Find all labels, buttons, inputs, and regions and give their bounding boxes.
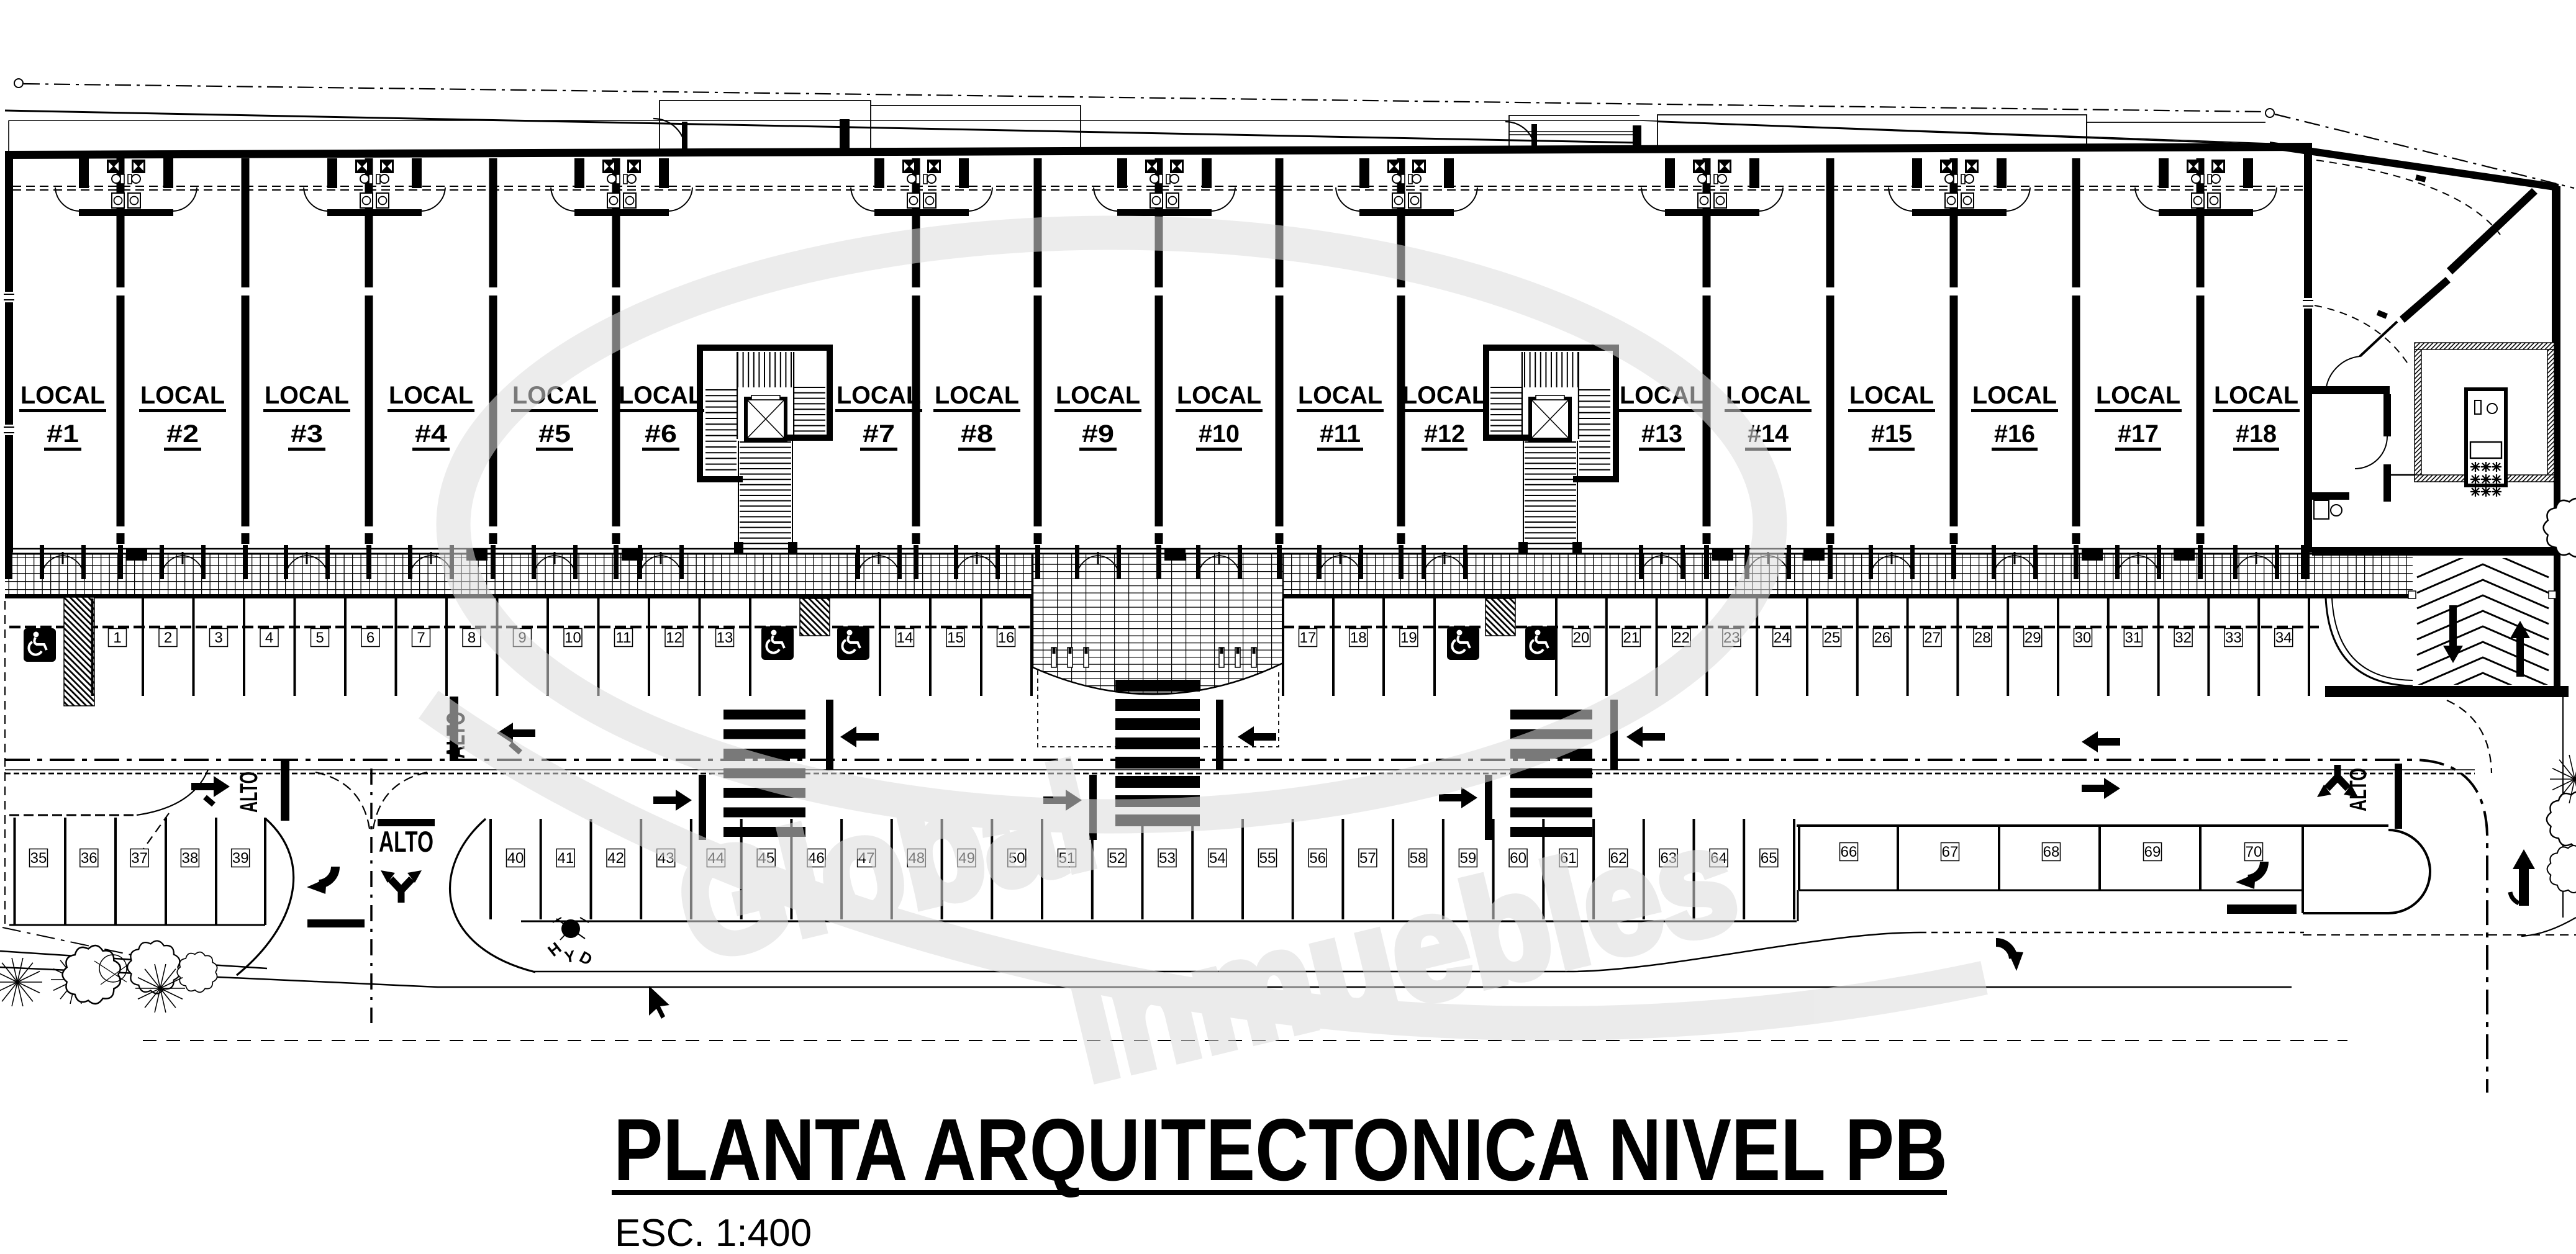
svg-text:#10: #10 xyxy=(1199,420,1240,448)
svg-text:#5: #5 xyxy=(538,420,571,448)
svg-text:30: 30 xyxy=(2075,629,2092,646)
svg-text:42: 42 xyxy=(607,850,624,867)
svg-text:36: 36 xyxy=(81,850,98,867)
svg-text:6: 6 xyxy=(366,629,374,646)
svg-text:LOCAL: LOCAL xyxy=(265,382,349,409)
svg-text:10: 10 xyxy=(565,629,581,646)
svg-text:11: 11 xyxy=(616,629,632,646)
svg-text:#11: #11 xyxy=(1320,420,1361,448)
svg-text:LOCAL: LOCAL xyxy=(1402,382,1487,409)
svg-text:18: 18 xyxy=(1350,629,1367,646)
svg-text:LOCAL: LOCAL xyxy=(389,382,473,409)
svg-text:LOCAL: LOCAL xyxy=(20,382,105,409)
svg-text:#13: #13 xyxy=(1641,420,1682,448)
svg-text:2: 2 xyxy=(164,629,172,646)
svg-text:35: 35 xyxy=(30,850,47,867)
svg-text:65: 65 xyxy=(1761,850,1777,867)
svg-text:LOCAL: LOCAL xyxy=(140,382,225,409)
svg-text:55: 55 xyxy=(1259,850,1276,867)
svg-text:LOCAL: LOCAL xyxy=(1177,382,1261,409)
svg-text:52: 52 xyxy=(1109,850,1125,867)
svg-text:39: 39 xyxy=(232,850,249,867)
svg-text:37: 37 xyxy=(131,850,148,867)
svg-text:#16: #16 xyxy=(1994,420,2035,448)
svg-text:#17: #17 xyxy=(2118,420,2159,448)
svg-text:53: 53 xyxy=(1159,850,1176,867)
svg-text:#18: #18 xyxy=(2236,420,2277,448)
svg-text:21: 21 xyxy=(1623,629,1639,646)
svg-text:LOCAL: LOCAL xyxy=(2096,382,2180,409)
svg-text:LOCAL: LOCAL xyxy=(1726,382,1810,409)
svg-text:13: 13 xyxy=(717,629,733,646)
svg-text:24: 24 xyxy=(1774,629,1790,646)
svg-text:1: 1 xyxy=(113,629,121,646)
svg-text:57: 57 xyxy=(1359,850,1376,867)
svg-text:#7: #7 xyxy=(863,420,895,448)
svg-text:67: 67 xyxy=(1942,844,1959,860)
svg-text:8: 8 xyxy=(468,629,476,646)
svg-text:19: 19 xyxy=(1400,629,1417,646)
svg-text:LOCAL: LOCAL xyxy=(2214,382,2298,409)
svg-text:LOCAL: LOCAL xyxy=(1056,382,1140,409)
svg-text:3: 3 xyxy=(214,629,222,646)
svg-text:41: 41 xyxy=(557,850,574,867)
svg-text:25: 25 xyxy=(1824,629,1841,646)
svg-text:LOCAL: LOCAL xyxy=(837,382,921,409)
svg-text:ALTO: ALTO xyxy=(379,825,433,858)
svg-text:LOCAL: LOCAL xyxy=(619,382,703,409)
svg-text:32: 32 xyxy=(2175,629,2192,646)
svg-text:70: 70 xyxy=(2246,844,2262,860)
svg-text:LOCAL: LOCAL xyxy=(1298,382,1382,409)
svg-text:27: 27 xyxy=(1924,629,1941,646)
svg-text:12: 12 xyxy=(666,629,683,646)
svg-text:28: 28 xyxy=(1974,629,1991,646)
svg-text:5: 5 xyxy=(315,629,324,646)
svg-text:14: 14 xyxy=(897,629,914,646)
svg-text:#2: #2 xyxy=(166,420,199,448)
svg-text:PLANTA ARQUITECTONICA NIVEL PB: PLANTA ARQUITECTONICA NIVEL PB xyxy=(614,1101,1948,1199)
svg-text:#1: #1 xyxy=(47,420,79,448)
svg-text:69: 69 xyxy=(2144,844,2161,860)
svg-text:38: 38 xyxy=(182,850,199,867)
svg-text:15: 15 xyxy=(947,629,964,646)
svg-text:#6: #6 xyxy=(645,420,677,448)
svg-text:16: 16 xyxy=(998,629,1015,646)
svg-text:7: 7 xyxy=(417,629,425,646)
svg-text:40: 40 xyxy=(507,850,524,867)
svg-text:29: 29 xyxy=(2025,629,2041,646)
svg-text:#3: #3 xyxy=(291,420,323,448)
svg-text:33: 33 xyxy=(2225,629,2242,646)
svg-text:4: 4 xyxy=(265,629,273,646)
svg-text:31: 31 xyxy=(2125,629,2141,646)
svg-text:#4: #4 xyxy=(415,420,448,448)
svg-text:20: 20 xyxy=(1573,629,1590,646)
svg-text:#12: #12 xyxy=(1424,420,1465,448)
svg-text:17: 17 xyxy=(1300,629,1317,646)
svg-text:#15: #15 xyxy=(1871,420,1912,448)
svg-text:#9: #9 xyxy=(1082,420,1114,448)
svg-text:56: 56 xyxy=(1309,850,1326,867)
svg-text:68: 68 xyxy=(2043,844,2060,860)
svg-text:22: 22 xyxy=(1673,629,1690,646)
svg-text:LOCAL: LOCAL xyxy=(1972,382,2057,409)
svg-text:#8: #8 xyxy=(961,420,993,448)
svg-text:66: 66 xyxy=(1841,844,1857,860)
svg-text:ALTO: ALTO xyxy=(235,772,263,813)
svg-text:26: 26 xyxy=(1874,629,1890,646)
svg-text:54: 54 xyxy=(1209,850,1226,867)
svg-text:LOCAL: LOCAL xyxy=(935,382,1019,409)
svg-text:34: 34 xyxy=(2275,629,2292,646)
svg-text:LOCAL: LOCAL xyxy=(1849,382,1934,409)
svg-text:ESC. 1:400: ESC. 1:400 xyxy=(615,1212,812,1254)
